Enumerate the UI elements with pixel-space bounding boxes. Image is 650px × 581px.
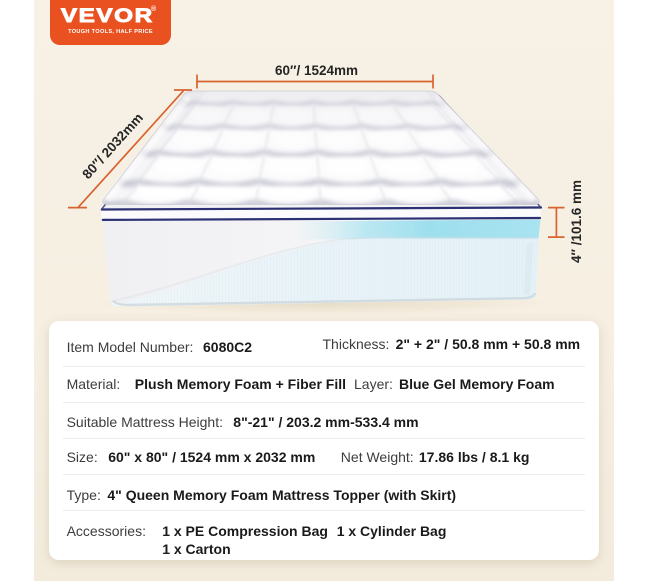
svg-text:60″/ 1524mm: 60″/ 1524mm xyxy=(275,63,358,78)
svg-text:4″ /101.6 mm: 4″ /101.6 mm xyxy=(569,180,584,263)
